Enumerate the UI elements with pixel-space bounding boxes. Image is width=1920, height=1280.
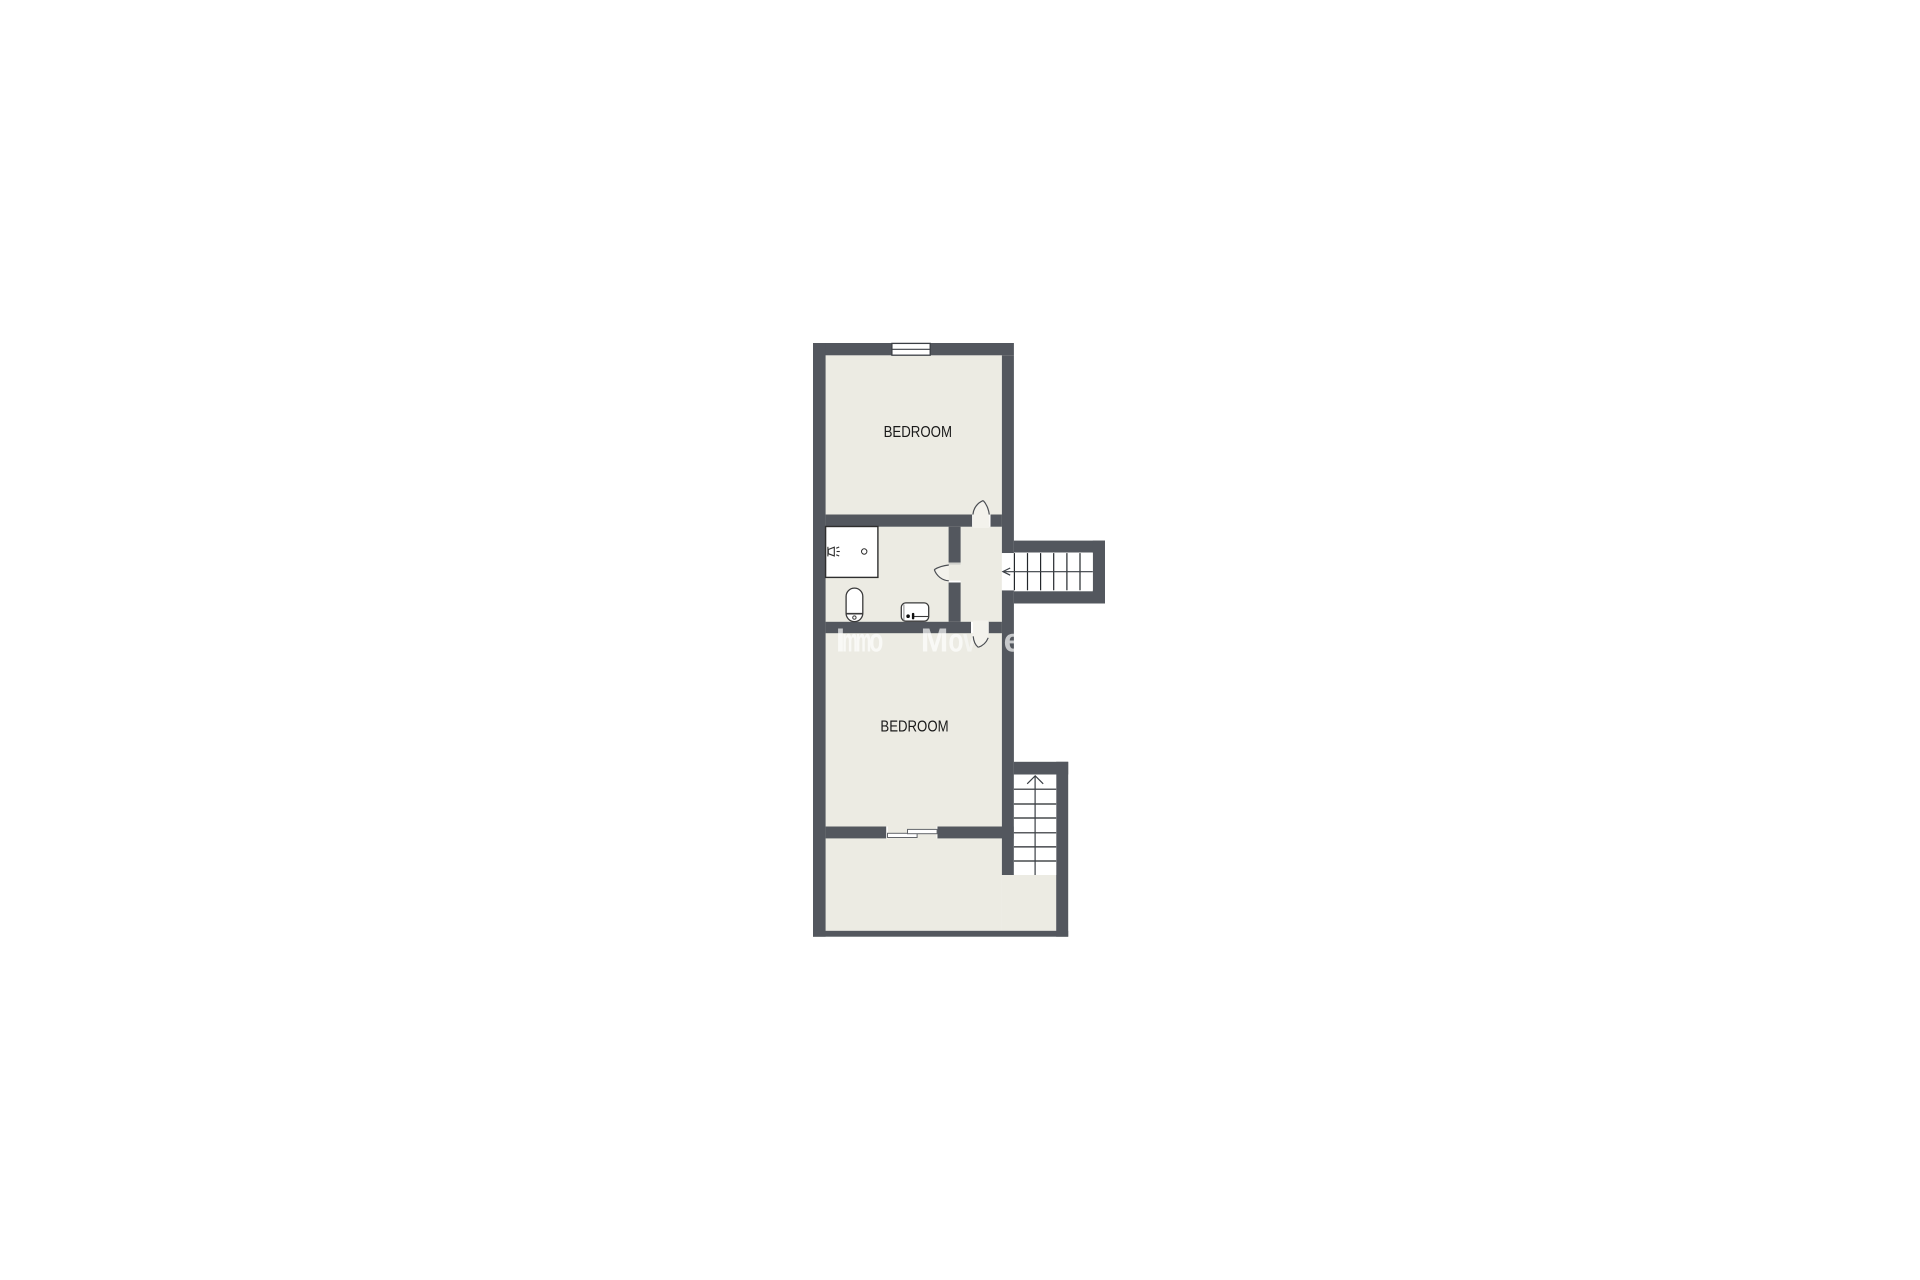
svg-text:M: M [921, 621, 949, 658]
svg-text:BEDROOM: BEDROOM [880, 718, 948, 735]
svg-text:o: o [869, 621, 883, 658]
svg-text:o: o [948, 621, 963, 658]
svg-text:BEDROOM: BEDROOM [884, 424, 952, 441]
svg-text:e: e [1004, 621, 1022, 658]
